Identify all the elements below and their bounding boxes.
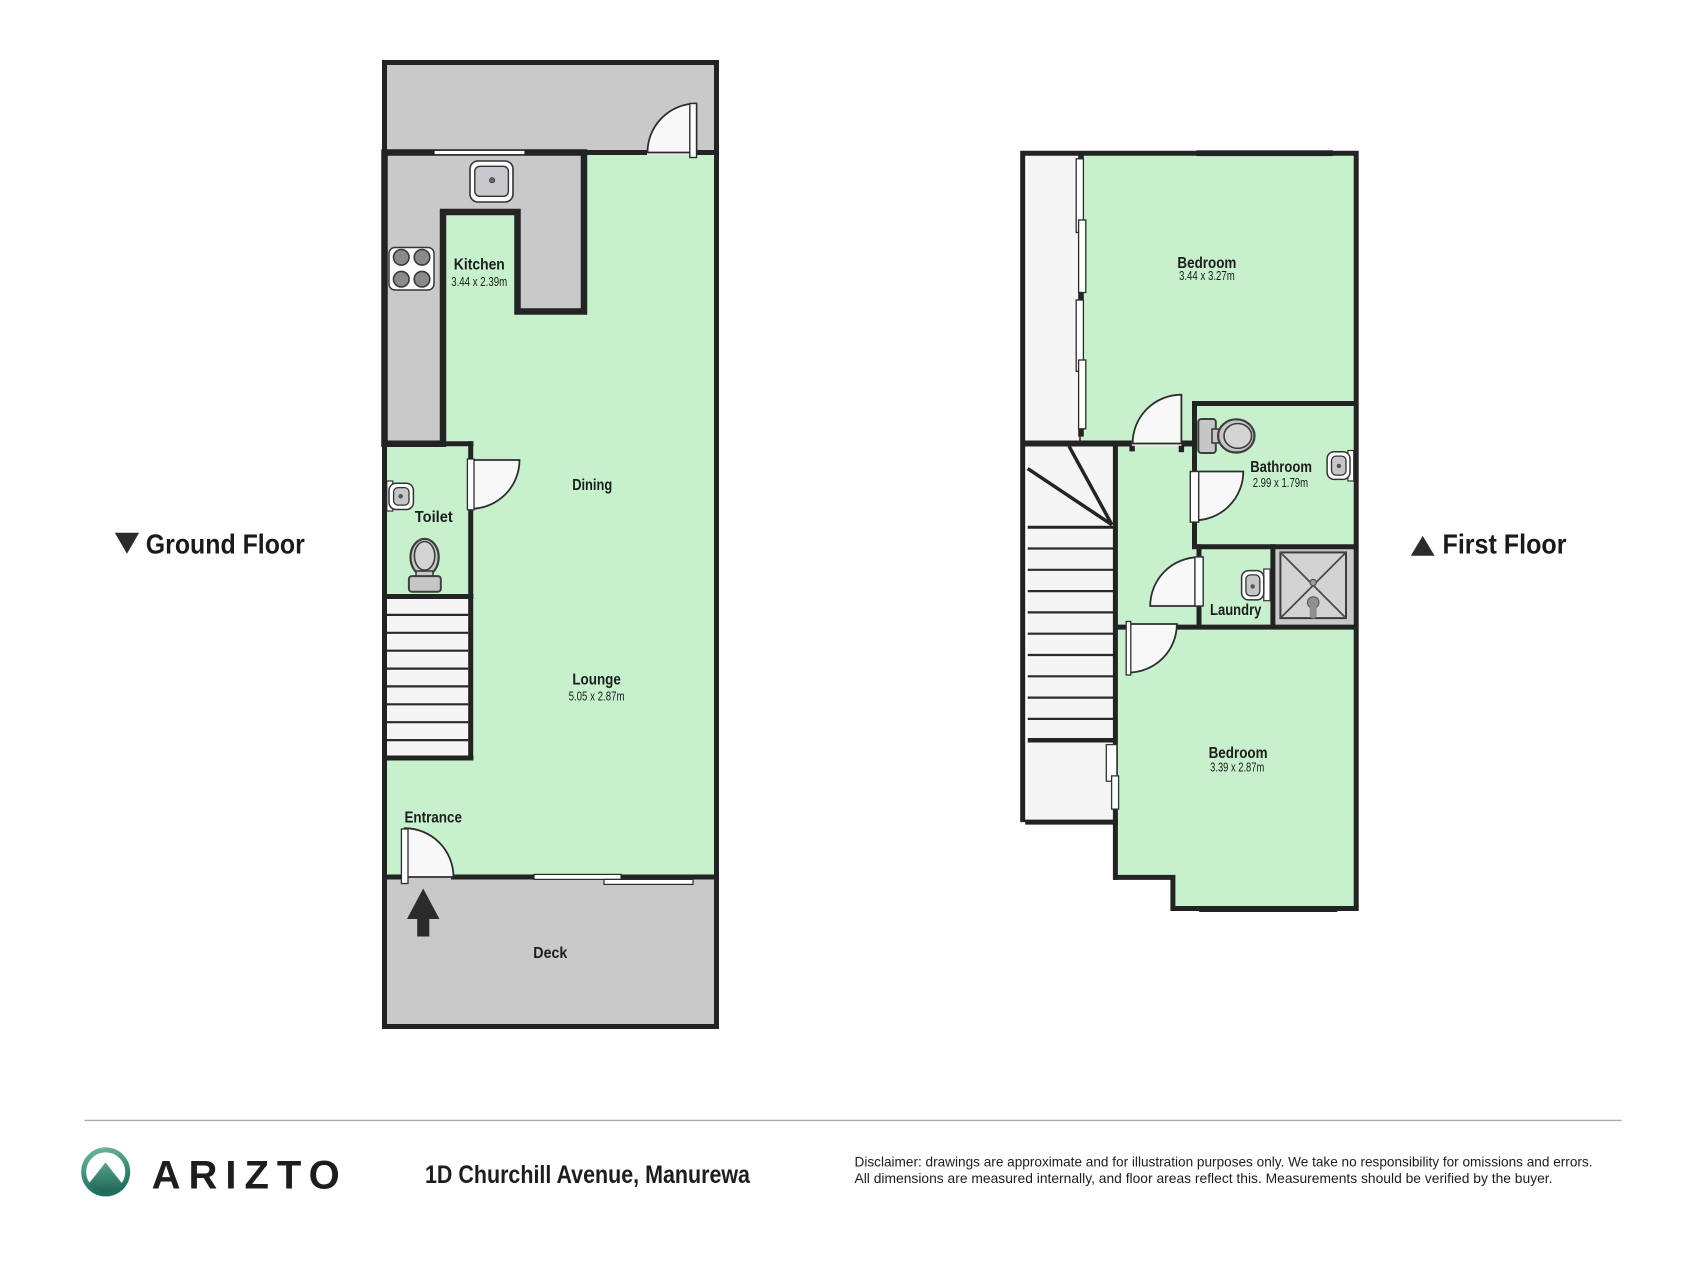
svg-text:ARIZTO: ARIZTO — [152, 1154, 348, 1198]
svg-text:Disclaimer: drawings are appro: Disclaimer: drawings are approximate and… — [855, 1155, 1593, 1170]
svg-text:2.99 x 1.79m: 2.99 x 1.79m — [1253, 476, 1308, 490]
svg-text:First Floor: First Floor — [1443, 529, 1567, 560]
svg-text:Laundry: Laundry — [1210, 602, 1262, 619]
svg-text:3.44 x 3.27m: 3.44 x 3.27m — [1179, 269, 1235, 283]
svg-text:Dining: Dining — [572, 477, 612, 494]
svg-text:3.39 x 2.87m: 3.39 x 2.87m — [1210, 761, 1264, 775]
svg-text:Entrance: Entrance — [404, 810, 462, 827]
svg-text:1D Churchill Avenue, Manurewa: 1D Churchill Avenue, Manurewa — [425, 1161, 751, 1189]
svg-text:5.05 x 2.87m: 5.05 x 2.87m — [569, 690, 625, 704]
svg-text:Bathroom: Bathroom — [1250, 459, 1312, 476]
svg-text:3.44 x 2.39m: 3.44 x 2.39m — [451, 275, 507, 289]
svg-text:Kitchen: Kitchen — [454, 257, 505, 274]
svg-text:Bedroom: Bedroom — [1209, 745, 1268, 762]
svg-text:Ground Floor: Ground Floor — [146, 529, 305, 560]
svg-text:All dimensions are measured in: All dimensions are measured internally, … — [855, 1171, 1553, 1186]
svg-text:Deck: Deck — [533, 945, 567, 962]
svg-text:Lounge: Lounge — [572, 672, 621, 689]
svg-text:Toilet: Toilet — [415, 509, 453, 526]
